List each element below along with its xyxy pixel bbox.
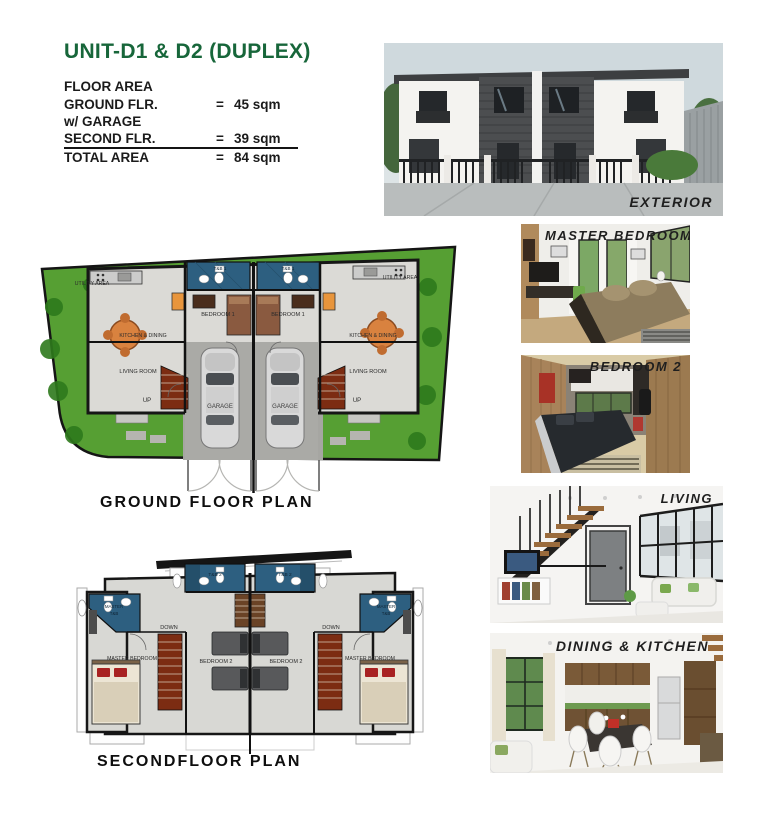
room-label-living-right: LIVING ROOM xyxy=(349,369,387,375)
room-label-garage-left: GARAGE xyxy=(207,404,233,410)
room-label-living-left: LIVING ROOM xyxy=(119,369,157,375)
room-label-bedroom2-left: BEDROOM 2 xyxy=(199,659,232,665)
room-label-master-tb-right: MASTER xyxy=(377,604,395,609)
dining-kitchen-label: DINING & KITCHEN xyxy=(556,638,709,654)
room-label-bedroom2-right: BEDROOM 2 xyxy=(269,659,302,665)
room-label-utility-right: UTILITY AREA xyxy=(383,275,418,281)
second-floor-plan: T&B 2 T&B 2 MASTER T&B MASTER T&B DOWN D… xyxy=(70,548,430,760)
room-label-bedroom1-right: BEDROOM 1 xyxy=(271,312,305,318)
floor-area-heading: FLOOR AREA xyxy=(64,79,298,94)
floor-area-row-total: TOTAL AREA = 84 sqm xyxy=(64,149,298,166)
second-floor-plan-caption: SECONDFLOOR PLAN xyxy=(97,753,301,771)
sofa-corner xyxy=(490,741,532,773)
bedroom-2-photo: BEDROOM 2 xyxy=(521,355,690,473)
dining-kitchen-photo: DINING & KITCHEN xyxy=(490,633,723,773)
living-photo: LIVING xyxy=(490,486,723,623)
ground-floor-plan: UTILITY AREA UTILITY AREA KITCHEN & DINI… xyxy=(30,245,465,493)
brochure-page: UNIT-D1 & D2 (DUPLEX) FLOOR AREA GROUND … xyxy=(0,0,768,814)
room-label-utility-left: UTILITY AREA xyxy=(75,281,110,287)
exterior-render xyxy=(384,43,723,216)
master-bedroom-photo: MASTER BEDROOM xyxy=(521,224,690,343)
room-label-kitchen-left: KITCHEN & DINING xyxy=(119,333,166,339)
floor-area-row-ground: GROUND FLR. = 45 sqm xyxy=(64,96,298,113)
floor-area-row-second: SECOND FLR. = 39 sqm xyxy=(64,130,298,149)
room-label-up-left: UP xyxy=(143,398,151,404)
exterior-photo: EXTERIOR xyxy=(384,43,723,216)
room-label-master-tb-left: MASTER xyxy=(105,604,123,609)
room-label-tb2-right: T&B 2 xyxy=(278,572,292,578)
floor-area-row-garage: w/ GARAGE xyxy=(64,113,298,130)
room-label-master-tb-left2: T&B xyxy=(110,611,119,616)
bedroom-2-label: BEDROOM 2 xyxy=(590,359,682,374)
room-label-up-right: UP xyxy=(353,398,361,404)
room-label-tb1-right: T&B 1 xyxy=(282,266,295,271)
room-label-down-left: DOWN xyxy=(160,625,177,631)
room-label-masterbedroom-left: MASTER BEDROOM xyxy=(107,656,157,662)
room-label-tb1-left: T&B 1 xyxy=(214,266,227,271)
room-label-masterbedroom-right: MASTER BEDROOM xyxy=(345,656,395,662)
exterior-label: EXTERIOR xyxy=(629,194,713,210)
page-title: UNIT-D1 & D2 (DUPLEX) xyxy=(64,40,311,64)
living-label: LIVING xyxy=(661,491,713,506)
driveway-gates xyxy=(188,460,319,493)
floor-area-table: FLOOR AREA GROUND FLR. = 45 sqm w/ GARAG… xyxy=(64,79,298,166)
master-bedroom-label: MASTER BEDROOM xyxy=(545,228,690,243)
room-label-bedroom1-left: BEDROOM 1 xyxy=(201,312,235,318)
ground-floor-plan-caption: GROUND FLOOR PLAN xyxy=(100,494,314,512)
room-label-kitchen-right: KITCHEN & DINING xyxy=(349,333,396,339)
room-label-master-tb-right2: T&B xyxy=(382,611,391,616)
room-label-down-right: DOWN xyxy=(322,625,339,631)
room-label-tb2-left: T&B 2 xyxy=(208,572,222,578)
room-label-garage-right: GARAGE xyxy=(272,404,298,410)
